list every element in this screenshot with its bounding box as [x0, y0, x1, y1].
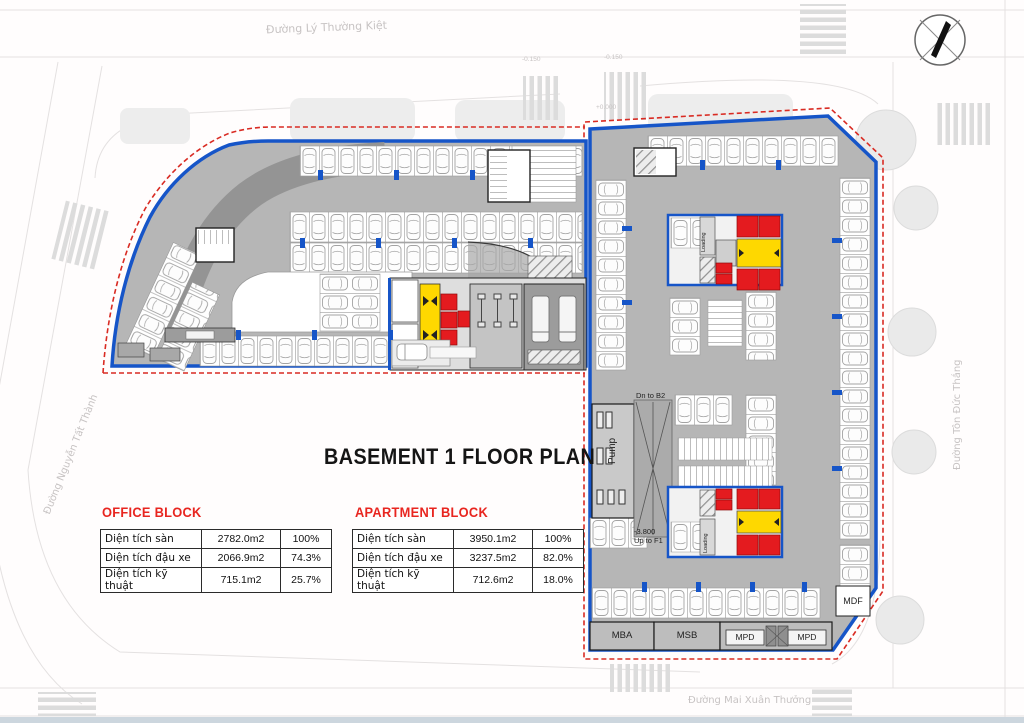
- mba-room-label: MBA: [590, 630, 654, 641]
- table-row: Diện tích sàn 2782.0m2 100%: [101, 530, 332, 549]
- mpd-room-label-left: MPD: [726, 632, 764, 642]
- loading-label-upper: Loading: [701, 232, 707, 252]
- msb-room-label: MSB: [654, 630, 720, 641]
- table-cell: 25.7%: [281, 568, 332, 593]
- table-cell: 100%: [281, 530, 332, 549]
- pump-room-label: Pump: [607, 438, 618, 464]
- ramp-direction: Up to F1: [634, 536, 663, 545]
- table-cell: Diện tích kỹ thuật: [353, 568, 454, 593]
- table-cell: 2066.9m2: [202, 549, 281, 568]
- table-row: Diện tích đậu xe 3237.5m2 82.0%: [353, 549, 584, 568]
- apartment-core-upper: [668, 215, 782, 290]
- ramp-to-b2: [634, 400, 672, 537]
- apartment-core-lower: [668, 487, 782, 557]
- van-icon: [397, 344, 427, 360]
- street-name-bottom: Đường Mai Xuân Thưởng: [688, 695, 811, 706]
- mpd-room-label-right: MPD: [788, 632, 826, 642]
- office-block-header: OFFICE BLOCK: [102, 505, 202, 520]
- office-block-table: Diện tích sàn 2782.0m2 100% Diện tích đậ…: [100, 529, 332, 593]
- table-cell: 3950.1m2: [454, 530, 533, 549]
- page-title: BASEMENT 1 FLOOR PLAN: [324, 444, 595, 470]
- elevation-marker: -0.150: [522, 56, 540, 63]
- apartment-building: [590, 116, 876, 650]
- floor-plan-canvas: BASEMENT 1 FLOOR PLAN OFFICE BLOCK Diện …: [0, 0, 1024, 723]
- street-name-right: Đường Tôn Đức Thắng: [952, 359, 963, 470]
- dn-to-b2-label: Dn to B2: [636, 391, 665, 400]
- table-cell: Diện tích đậu xe: [101, 549, 202, 568]
- table-cell: Diện tích sàn: [101, 530, 202, 549]
- table-cell: 100%: [533, 530, 584, 549]
- table-row: Diện tích đậu xe 2066.9m2 74.3%: [101, 549, 332, 568]
- office-building: [112, 141, 586, 371]
- table-cell: 18.0%: [533, 568, 584, 593]
- table-row: Diện tích kỹ thuật 712.6m2 18.0%: [353, 568, 584, 593]
- table-cell: 74.3%: [281, 549, 332, 568]
- table-row: Diện tích kỹ thuật 715.1m2 25.7%: [101, 568, 332, 593]
- table-cell: Diện tích kỹ thuật: [101, 568, 202, 593]
- apartment-building-outline: [590, 116, 876, 650]
- loading-label-lower: Loading: [703, 533, 709, 553]
- elevation-marker: +0.000: [596, 104, 616, 111]
- table-cell: 712.6m2: [454, 568, 533, 593]
- stair-box: [196, 228, 234, 262]
- table-cell: 2782.0m2: [202, 530, 281, 549]
- apartment-block-table: Diện tích sàn 3950.1m2 100% Diện tích đậ…: [352, 529, 584, 593]
- north-compass-icon: [915, 15, 965, 65]
- stair-box: [488, 150, 530, 202]
- table-cell: 3237.5m2: [454, 549, 533, 568]
- table-cell: Diện tích đậu xe: [353, 549, 454, 568]
- floor-plan-drawing: [0, 0, 1024, 723]
- office-core: [388, 278, 586, 370]
- table-cell: 715.1m2: [202, 568, 281, 593]
- ramp-level-value: -3.800: [634, 527, 663, 536]
- apartment-block-header: APARTMENT BLOCK: [355, 505, 488, 520]
- table-cell: 82.0%: [533, 549, 584, 568]
- stair-box: [634, 148, 676, 176]
- elevation-marker: -0.150: [604, 54, 622, 61]
- table-cell: Diện tích sàn: [353, 530, 454, 549]
- mdf-room-label: MDF: [836, 596, 870, 606]
- page-bottom-strip: [0, 717, 1024, 723]
- table-row: Diện tích sàn 3950.1m2 100%: [353, 530, 584, 549]
- ramp-level-label: -3.800 Up to F1: [634, 527, 663, 546]
